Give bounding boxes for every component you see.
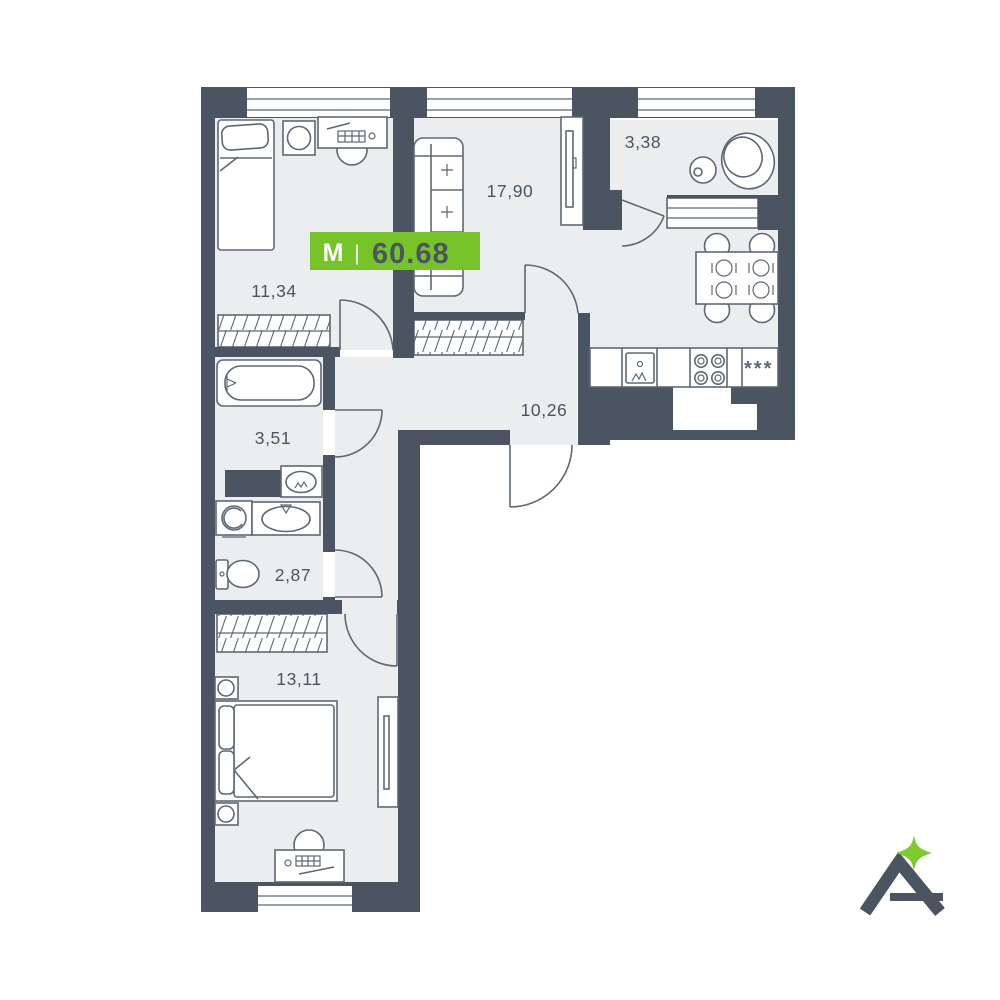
nightstand-icon	[283, 121, 315, 155]
fridge-icon: ***	[744, 358, 773, 380]
area-badge: М | 60.68	[310, 232, 480, 270]
single-bed-icon	[218, 120, 274, 250]
window	[638, 88, 755, 117]
toilet-icon	[216, 560, 259, 589]
badge-type-label: М	[323, 239, 344, 267]
developer-logo	[865, 835, 943, 912]
radiator-icon	[667, 198, 758, 228]
wardrobe-icon	[414, 320, 523, 355]
nightstand-icon	[215, 677, 238, 699]
tv-console-icon	[561, 117, 583, 225]
room-area-label: 13,11	[276, 669, 322, 689]
floor-plan-page: ***	[0, 0, 1000, 1000]
room-area-label: 2,87	[275, 565, 311, 585]
wc-sink-icon	[252, 502, 320, 535]
floor-plan-canvas: ***	[0, 0, 1000, 1000]
room-area-label: 10,26	[521, 400, 568, 420]
nightstand-icon	[215, 803, 238, 825]
kitchen-sink-icon	[626, 353, 654, 383]
double-bed-icon	[215, 701, 337, 801]
window	[258, 886, 352, 912]
window	[247, 88, 390, 117]
wardrobe-icon	[217, 614, 327, 652]
badge-total-area: 60.68	[372, 238, 450, 270]
room-area-label: 3,51	[255, 428, 291, 448]
washing-machine-icon	[216, 501, 252, 537]
window	[427, 88, 572, 117]
sofa-icon	[414, 138, 463, 296]
bathtub-icon	[217, 360, 321, 406]
wardrobe-tall-icon	[378, 697, 398, 807]
bathroom-sink-icon	[281, 466, 322, 497]
room-area-label: 17,90	[487, 181, 534, 201]
badge-divider: |	[354, 242, 359, 265]
toilet-icon	[690, 157, 716, 183]
room-area-label: 11,34	[251, 281, 297, 301]
wardrobe-icon	[218, 315, 330, 347]
room-area-label: 3,38	[625, 132, 661, 152]
kitchen-counter-icon: ***	[590, 348, 778, 387]
